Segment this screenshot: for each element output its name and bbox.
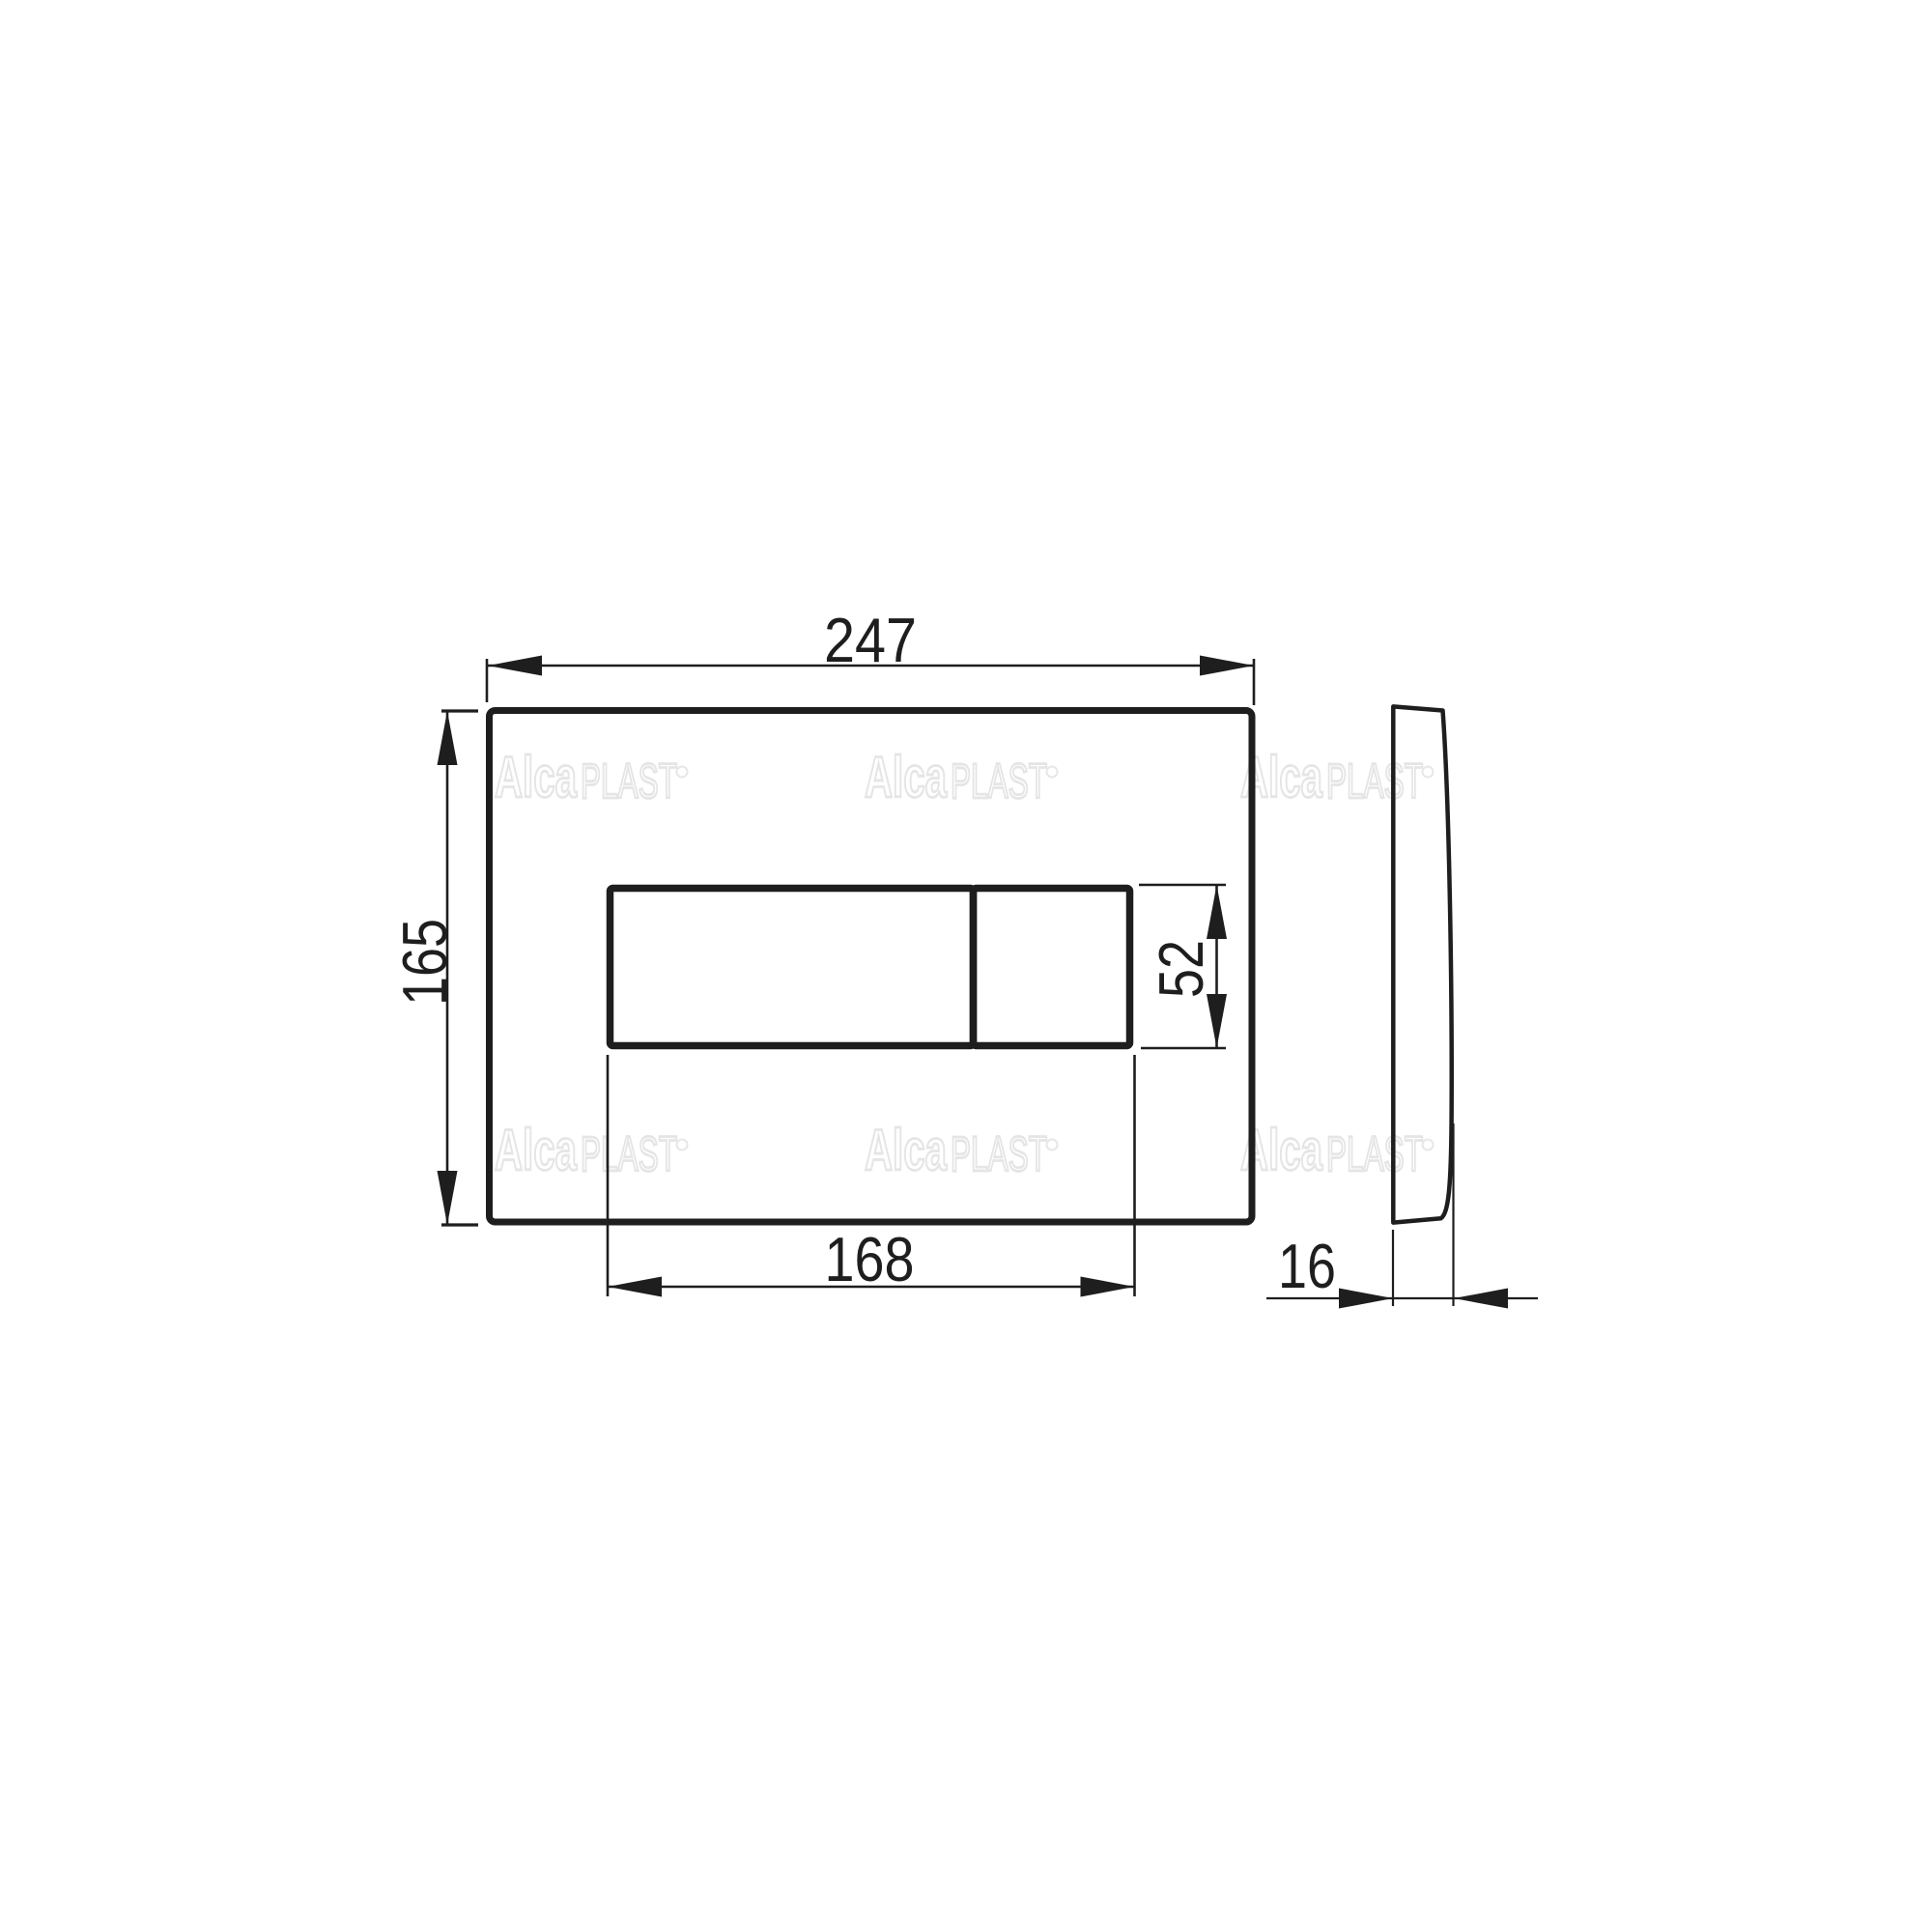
svg-text:Alca: Alca — [495, 1118, 577, 1182]
svg-text:PLAST: PLAST — [1326, 1126, 1423, 1181]
svg-text:Alca: Alca — [865, 745, 947, 810]
svg-text:PLAST: PLAST — [581, 1126, 677, 1181]
svg-text:Alca: Alca — [495, 745, 577, 810]
svg-text:Alca: Alca — [865, 1118, 947, 1182]
svg-text:165: 165 — [389, 919, 460, 1006]
svg-text:PLAST: PLAST — [951, 753, 1047, 809]
svg-text:PLAST: PLAST — [581, 753, 677, 809]
svg-text:168: 168 — [825, 1224, 915, 1294]
svg-text:16: 16 — [1278, 1231, 1336, 1301]
svg-text:247: 247 — [824, 605, 917, 675]
svg-text:PLAST: PLAST — [1326, 753, 1423, 809]
svg-text:PLAST: PLAST — [951, 1126, 1047, 1181]
svg-text:52: 52 — [1146, 940, 1216, 998]
